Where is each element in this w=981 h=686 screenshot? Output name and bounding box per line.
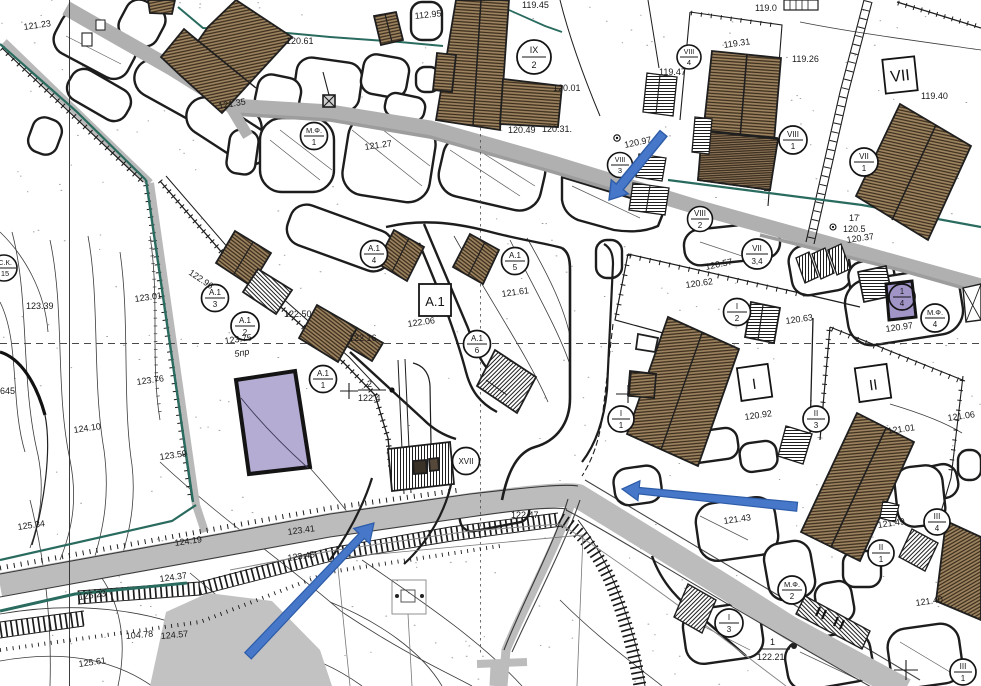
svg-text:15: 15 (1, 269, 9, 278)
svg-text:17: 17 (849, 213, 859, 223)
svg-text:1: 1 (862, 164, 867, 173)
svg-text:119.45: 119.45 (522, 0, 549, 10)
svg-text:4: 4 (935, 524, 940, 533)
svg-text:1: 1 (619, 421, 624, 430)
svg-text:119.47: 119.47 (659, 67, 686, 77)
svg-text:А.1: А.1 (317, 369, 330, 378)
svg-text:А.1: А.1 (368, 244, 381, 253)
svg-text:I: I (620, 409, 622, 418)
svg-text:VIII: VIII (787, 130, 799, 139)
svg-text:1: 1 (900, 287, 905, 296)
svg-text:119.40: 119.40 (921, 91, 948, 101)
svg-text:122.50: 122.50 (284, 309, 312, 319)
svg-text:М.Ф.: М.Ф. (306, 126, 322, 135)
svg-text:1: 1 (879, 555, 884, 564)
svg-text:119.26: 119.26 (792, 54, 819, 64)
svg-text:II: II (879, 543, 883, 552)
svg-text:2: 2 (735, 314, 740, 323)
svg-text:А.1: А.1 (471, 334, 484, 343)
svg-text:II: II (814, 409, 818, 418)
svg-text:120.01: 120.01 (553, 83, 581, 93)
svg-text:1: 1 (312, 138, 317, 147)
svg-text:С.К.: С.К. (0, 258, 12, 267)
svg-text:III: III (960, 662, 967, 671)
svg-text:645: 645 (0, 386, 15, 396)
svg-text:120.49: 120.49 (508, 125, 536, 135)
svg-text:3: 3 (213, 300, 218, 309)
svg-text:I: I (736, 302, 738, 311)
svg-text:122.21: 122.21 (757, 652, 785, 662)
svg-text:1: 1 (770, 637, 775, 647)
svg-text:120.31.: 120.31. (542, 124, 572, 134)
svg-text:2: 2 (531, 60, 536, 70)
svg-text:1: 1 (791, 142, 796, 151)
svg-text:VII: VII (752, 244, 762, 253)
svg-text:4: 4 (372, 256, 377, 265)
svg-text:IX: IX (530, 45, 539, 55)
svg-text:VII: VII (890, 67, 911, 86)
svg-text:3: 3 (727, 625, 732, 634)
svg-text:М.Ф.: М.Ф. (784, 580, 800, 589)
svg-text:А.1: А.1 (509, 251, 522, 260)
svg-text:119.0: 119.0 (755, 3, 777, 13)
svg-text:2: 2 (698, 221, 703, 230)
svg-text:123.39: 123.39 (26, 301, 54, 311)
svg-text:122.4: 122.4 (358, 393, 381, 403)
svg-text:1: 1 (961, 674, 966, 683)
svg-text:122.47: 122.47 (511, 510, 539, 520)
svg-text:122.16: 122.16 (349, 333, 377, 343)
svg-text:А.1: А.1 (239, 316, 252, 325)
svg-text:VIII: VIII (615, 157, 626, 164)
svg-text:XVII: XVII (458, 457, 473, 466)
svg-text:М.Ф.: М.Ф. (927, 308, 943, 317)
svg-text:2: 2 (367, 379, 372, 389)
svg-text:5: 5 (513, 263, 518, 272)
svg-text:III: III (934, 512, 941, 521)
svg-text:4: 4 (933, 320, 938, 329)
svg-text:120.61: 120.61 (286, 36, 314, 46)
svg-text:I: I (728, 613, 730, 622)
svg-text:2: 2 (790, 592, 795, 601)
svg-text:VIII: VIII (694, 209, 706, 218)
svg-text:3,4: 3,4 (751, 257, 763, 266)
svg-text:4: 4 (900, 299, 905, 308)
svg-text:А.1: А.1 (425, 294, 445, 309)
svg-text:4: 4 (687, 58, 691, 67)
svg-text:VIII: VIII (684, 49, 695, 56)
svg-text:3: 3 (814, 421, 819, 430)
svg-text:1: 1 (321, 381, 326, 390)
svg-text:6: 6 (475, 346, 480, 355)
svg-text:А.1: А.1 (209, 288, 222, 297)
svg-text:VII: VII (859, 152, 869, 161)
svg-text:3: 3 (618, 166, 622, 175)
